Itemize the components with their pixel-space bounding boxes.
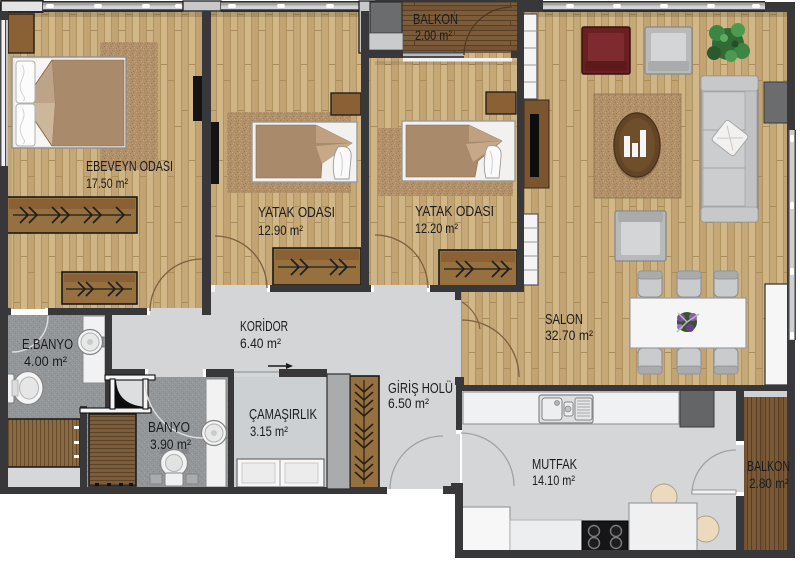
svg-text:12.20 m²: 12.20 m² [415, 221, 458, 236]
svg-text:BALKON: BALKON [747, 458, 790, 475]
svg-text:6.50 m²: 6.50 m² [388, 396, 429, 411]
svg-text:YATAK ODASI: YATAK ODASI [258, 204, 335, 221]
svg-text:SALON: SALON [545, 311, 583, 328]
svg-text:3.90 m²: 3.90 m² [150, 437, 191, 452]
svg-text:GİRİŞ HOLÜ: GİRİŞ HOLÜ [388, 379, 453, 397]
svg-text:ÇAMAŞIRLIK: ÇAMAŞIRLIK [249, 406, 317, 423]
svg-text:E.BANYO: E.BANYO [22, 336, 73, 353]
svg-text:YATAK ODASI: YATAK ODASI [415, 203, 494, 220]
svg-text:3.15 m²: 3.15 m² [250, 424, 288, 439]
svg-text:12.90 m²: 12.90 m² [258, 223, 303, 238]
svg-text:4.00 m²: 4.00 m² [24, 354, 67, 369]
svg-text:17.50 m²: 17.50 m² [86, 176, 128, 191]
svg-text:BALKON: BALKON [413, 11, 458, 28]
svg-text:6.40 m²: 6.40 m² [240, 336, 281, 351]
svg-text:14.10 m²: 14.10 m² [532, 473, 575, 488]
svg-text:EBEVEYN ODASI: EBEVEYN ODASI [86, 158, 173, 175]
svg-text:32.70 m²: 32.70 m² [545, 328, 593, 343]
svg-text:MUTFAK: MUTFAK [532, 456, 577, 473]
svg-text:2.80 m²: 2.80 m² [749, 476, 789, 491]
svg-text:BANYO: BANYO [148, 419, 190, 436]
svg-text:2.00 m²: 2.00 m² [415, 28, 452, 43]
svg-text:KORİDOR: KORİDOR [240, 317, 288, 335]
